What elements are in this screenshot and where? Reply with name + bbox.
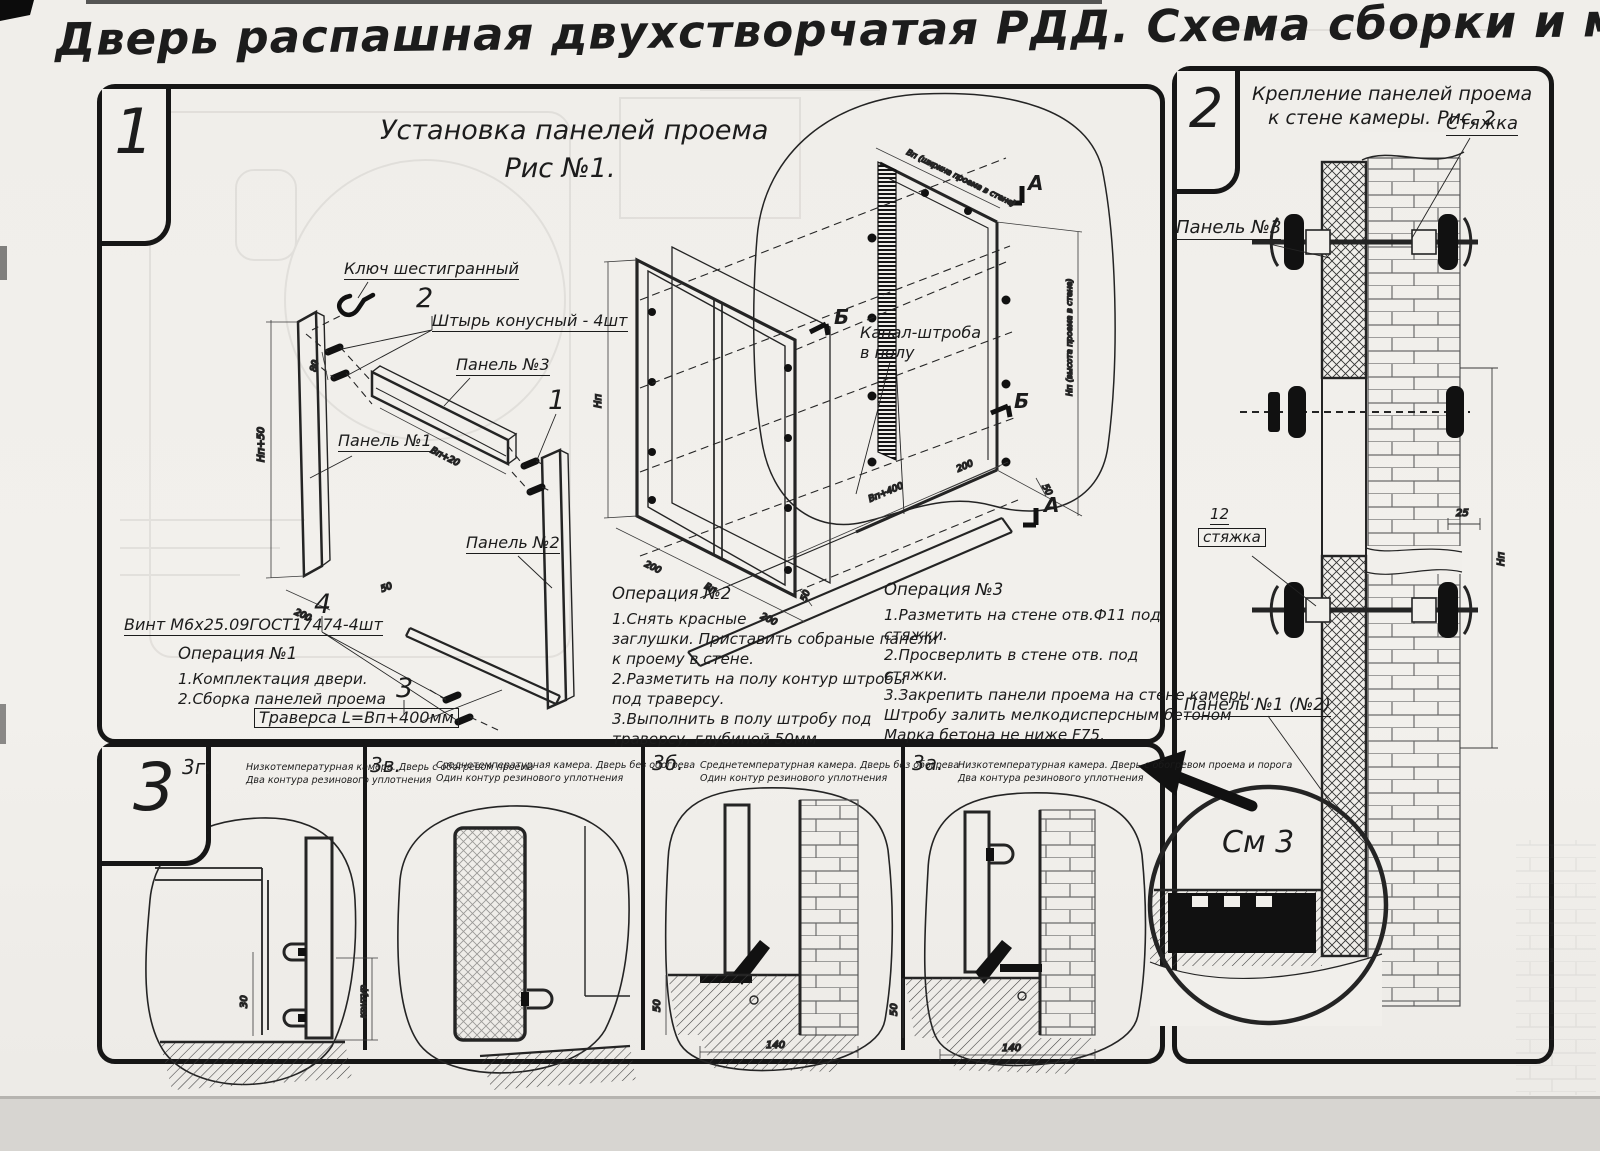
dim-wall-width: Вп (ширина проема в стене) — [905, 148, 1017, 209]
wall-channel-strip — [878, 162, 896, 460]
hex-key-icon — [339, 295, 373, 315]
detail-3v-caption2: Один контур резинового уплотнения — [436, 773, 623, 785]
operation-3-line: Марка бетона не ниже F75. — [884, 725, 1255, 745]
dim-140-3b: 140 — [766, 1040, 785, 1051]
operation-1-line: 2.Сборка панелей проема — [178, 689, 386, 709]
dim-bp20: Вп+20 — [429, 446, 461, 469]
operation-1-line: 1.Комплектация двери. — [178, 669, 386, 689]
drawing-sheet: Дверь распашная двухстворчатая РДД. Схем… — [0, 0, 1600, 1151]
dim-50-3a: 50 — [889, 1003, 900, 1016]
traverse-shape — [406, 628, 560, 704]
operation-3-line: 2.Просверлить в стене отв. под — [884, 645, 1255, 665]
section-mark-b1: Б — [834, 306, 849, 328]
dim-140-3a: 140 — [1002, 1043, 1021, 1054]
detail-3b: 50 140 — [652, 788, 892, 1072]
detail-3a-id: 3а. — [912, 752, 943, 774]
door-leaf-3g — [306, 838, 332, 1038]
label-panel2: Панель №2 — [466, 534, 560, 554]
panel1-shape — [298, 312, 322, 576]
wall-outline — [754, 93, 1115, 524]
label-see3: См 3 — [1222, 826, 1294, 860]
detail-3a-caption2: Два контура резинового уплотнения — [958, 773, 1143, 785]
fig2-wall-section: 25 Нп — [1138, 132, 1507, 1026]
detail-3b-id: 3б. — [652, 752, 683, 774]
dim-hp-2: Нп — [1496, 551, 1507, 566]
label-channel-1: Канал-штроба — [860, 324, 981, 342]
dim-200-d: 200 — [955, 459, 975, 475]
section2-badge: 2 — [1177, 71, 1240, 194]
dim-80: 80 — [309, 359, 321, 373]
callout-2: 2 — [416, 284, 433, 314]
door-leaf-3a — [965, 812, 989, 972]
dim-contour: контур — [359, 985, 369, 1018]
fig3-details: 30 контур — [146, 746, 1146, 1090]
label-pin: Штырь конусный - 4шт — [432, 312, 628, 332]
label-panel1: Панель №1 — [338, 432, 432, 452]
label-traverse: Траверса L=Вп+400мм — [254, 708, 459, 728]
operation-3-line: стяжки. — [884, 665, 1255, 685]
panel3-section — [1322, 162, 1366, 378]
label-channel-2: в полу — [860, 344, 914, 362]
detail-3b-caption2: Один контур резинового уплотнения — [700, 773, 887, 785]
section2-number: 2 — [1177, 71, 1235, 140]
detail-3g-caption2: Два контура резинового уплотнения — [246, 775, 431, 787]
dim-bp400: Вп+400 — [867, 481, 905, 505]
section-mark-b2: Б — [1014, 390, 1029, 412]
dim-30: 30 — [239, 995, 250, 1008]
section1-badge: 1 — [102, 89, 171, 246]
detail-3v — [398, 806, 636, 1090]
label-screw: Винт М6х25.09ГОСТ17474-4шт — [124, 616, 383, 636]
section1-number: 1 — [102, 89, 166, 168]
fig1-subtitle: Рис №1. — [380, 154, 740, 184]
operation-1-block: Операция №1 1.Комплектация двери. 2.Сбор… — [178, 644, 386, 709]
detail-3a-caption1: Низкотемпературная камера. Дверь с обогр… — [958, 760, 1292, 772]
operation-3-block: Операция №3 1.Разметить на стене отв.Ф11… — [884, 580, 1255, 745]
section-mark-a2: А — [1044, 494, 1059, 516]
projection-lines — [640, 158, 1018, 592]
detail-3g-id: 3г. — [182, 756, 212, 778]
dim-200-b: 200 — [643, 560, 663, 577]
dim-wall-height: Нп (высота проема в стене) — [1065, 279, 1074, 396]
panel-joint-section — [1322, 378, 1366, 556]
label-tie-12: 12 — [1210, 506, 1229, 525]
callout-3: 3 — [396, 674, 413, 704]
label-panel3: Панель №3 — [456, 356, 550, 376]
dim-hp50: Нп+50 — [256, 427, 267, 462]
detail-3a: 50 140 — [889, 793, 1145, 1074]
operation-1-title: Операция №1 — [178, 644, 386, 663]
fig1-title: Установка панелей проема — [380, 116, 740, 146]
label-panel3-fig2: Панель №3 — [1176, 218, 1281, 240]
dim-hp: Нп — [593, 393, 604, 408]
fig2-title-line1: Крепление панелей проема — [1252, 84, 1532, 105]
section-mark-a1: А — [1028, 172, 1043, 194]
section-flags — [810, 186, 1036, 525]
dim-50-3b: 50 — [652, 999, 663, 1012]
technical-drawing: Нп+50 200 Вп+20 80 50 — [0, 0, 1600, 1151]
see3-arrow-icon — [1138, 750, 1252, 806]
dim-50-a: 50 — [380, 581, 394, 594]
operation-3-line: 1.Разметить на стене отв.Ф11 под — [884, 605, 1255, 625]
label-panel12: Панель №1 (№2) — [1184, 696, 1331, 717]
operation-3-line: стяжки. — [884, 625, 1255, 645]
operation-3-title: Операция №3 — [884, 580, 1255, 599]
label-tie: Стяжка — [1446, 114, 1518, 136]
label-hex-key: Ключ шестигранный — [344, 260, 519, 280]
door-leaf-3b — [725, 805, 749, 973]
callout-1: 1 — [548, 386, 565, 416]
dim-25: 25 — [1456, 508, 1469, 519]
detail-3v-id: 3в. — [370, 754, 401, 776]
door-leaf-3v — [455, 828, 525, 1040]
label-tie-12-word: стяжка — [1198, 528, 1266, 547]
